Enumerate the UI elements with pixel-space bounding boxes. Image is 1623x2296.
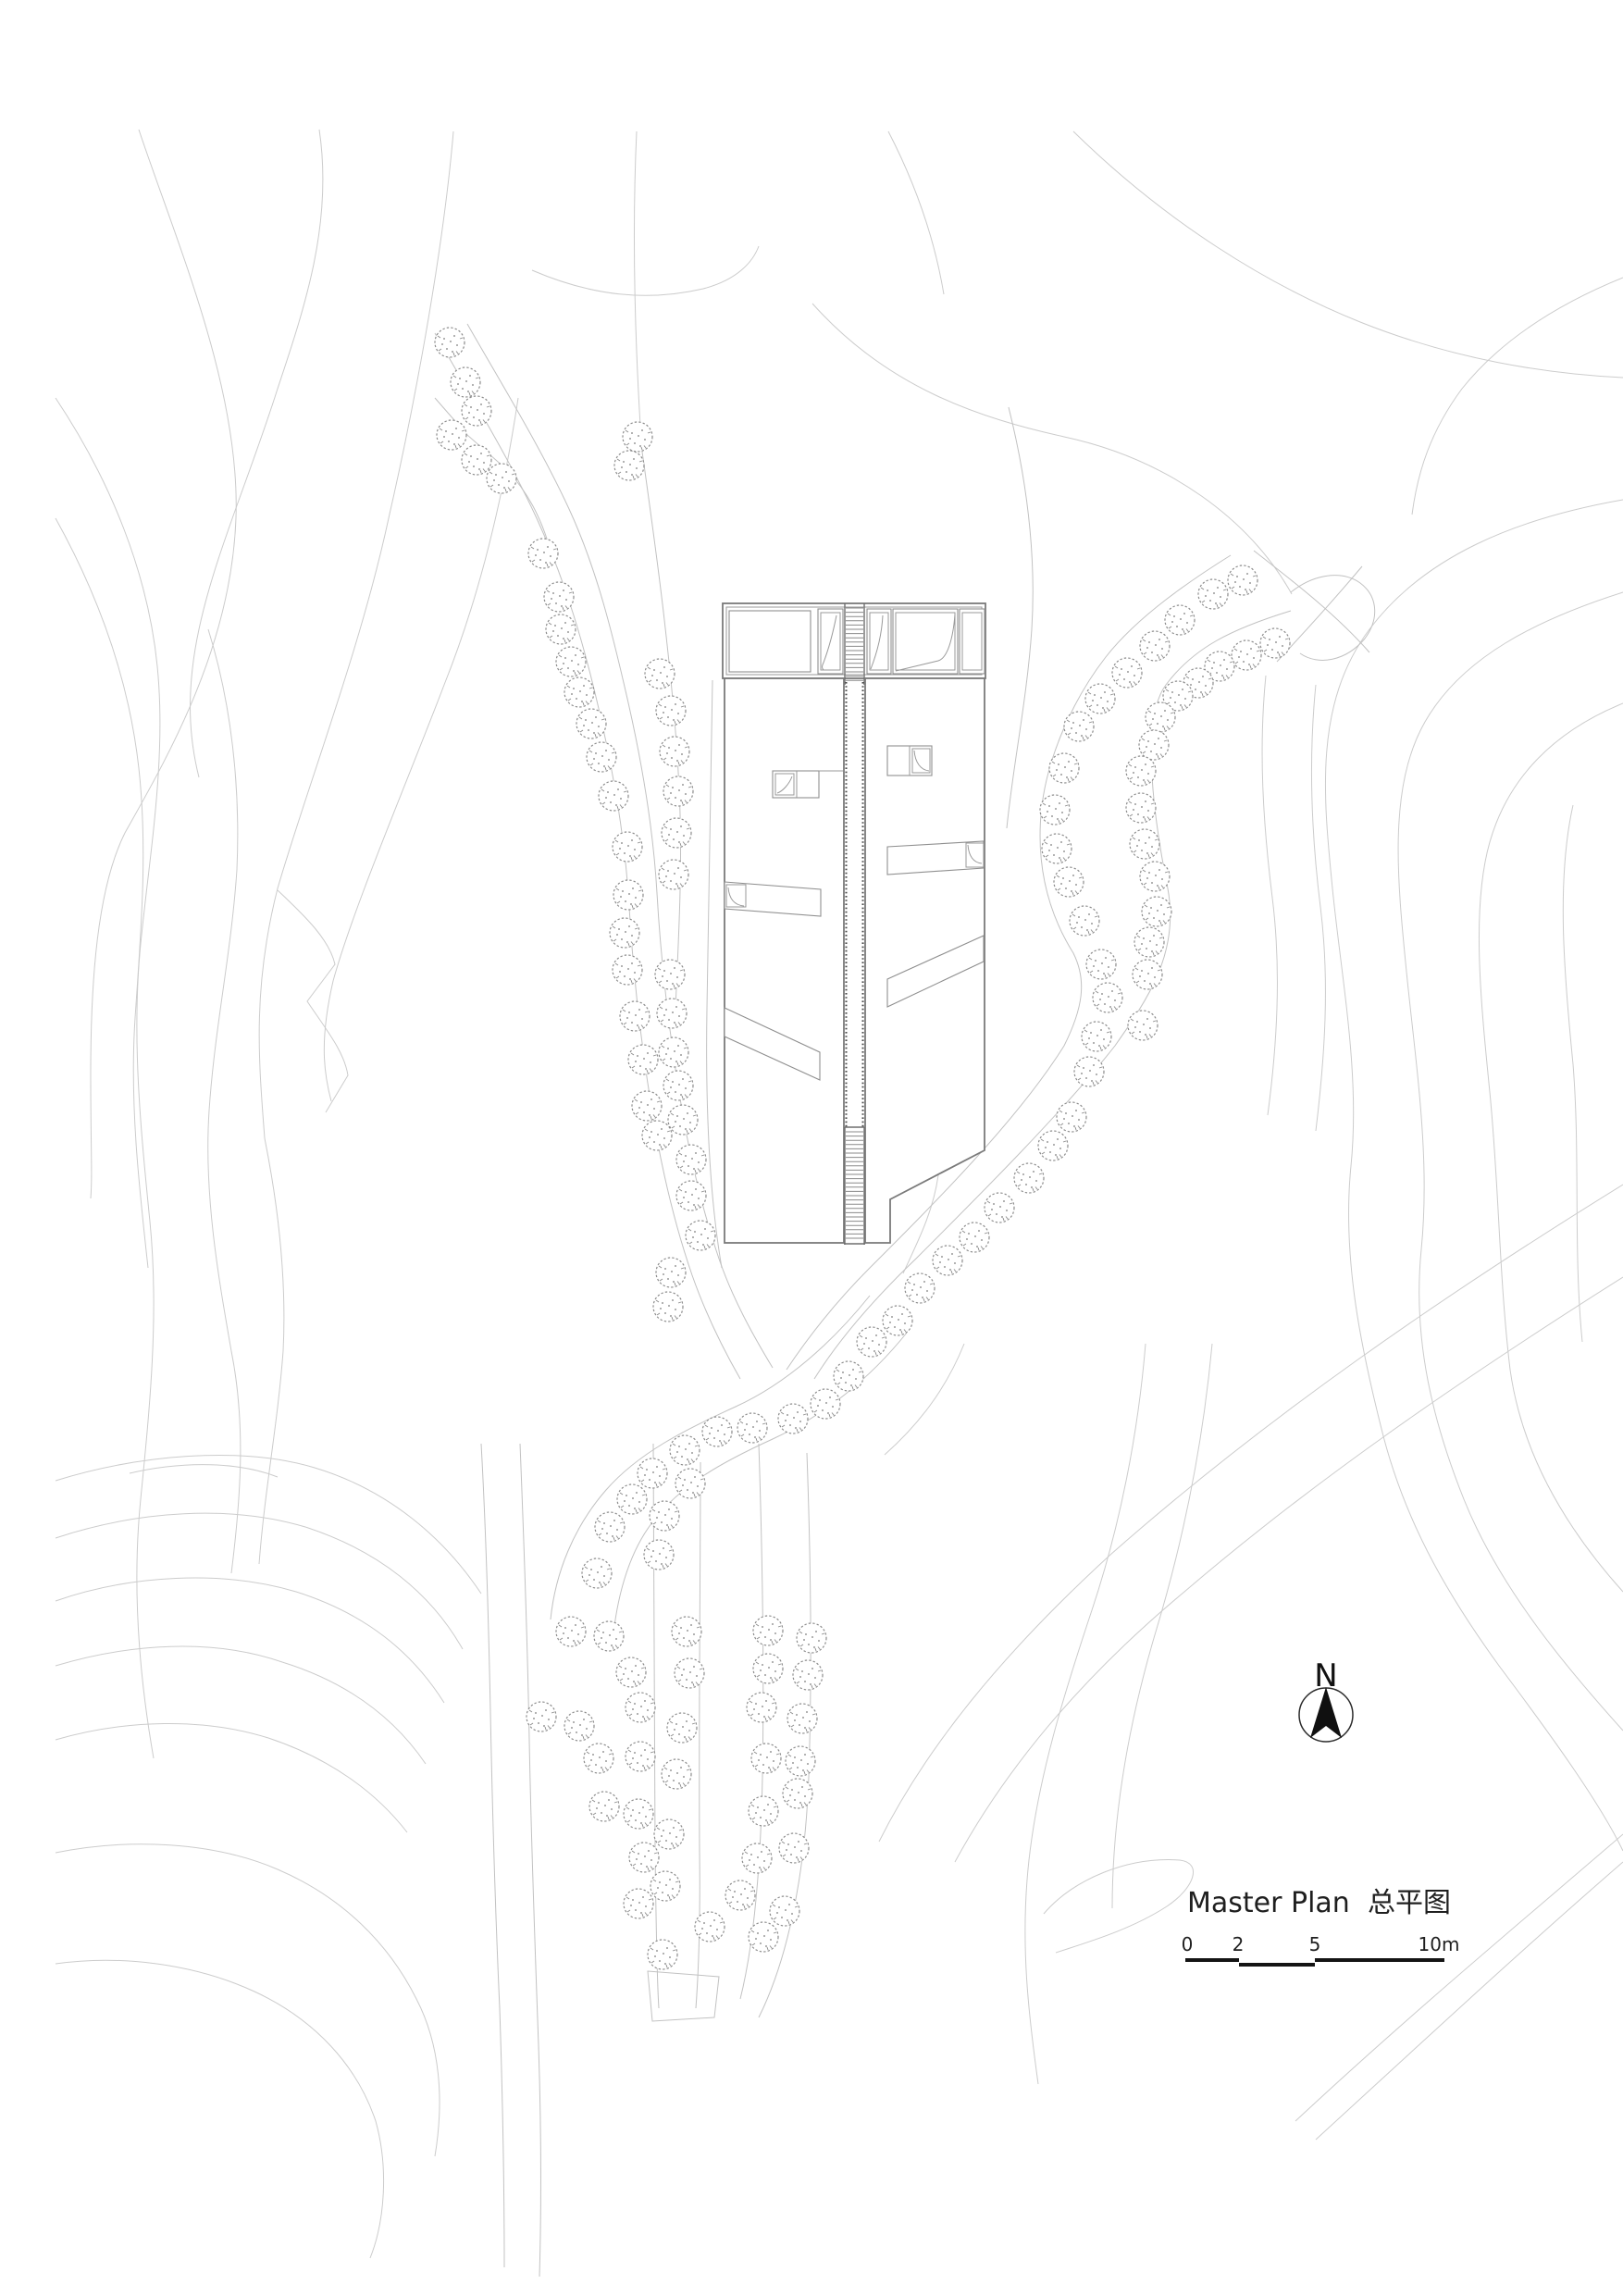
tree-symbol — [811, 1389, 840, 1419]
contour-line — [91, 130, 236, 1198]
site-plan-canvas: N Master Plan 总平图 02510m — [0, 0, 1623, 2296]
north-arrow: N — [1299, 1657, 1353, 1742]
tree-symbol — [933, 1246, 962, 1275]
tree-symbol — [675, 1469, 705, 1498]
contour-line — [634, 131, 640, 426]
tree-symbol — [751, 1744, 781, 1773]
tree-symbol — [1038, 1131, 1068, 1160]
tree-symbol — [676, 1181, 706, 1210]
tree-symbol — [1128, 1011, 1158, 1040]
contour-line — [56, 1723, 407, 1832]
tree-symbol — [626, 1742, 655, 1771]
tree-symbol — [632, 1091, 662, 1121]
tree-symbol — [662, 1759, 691, 1789]
tree-symbol — [1228, 565, 1258, 595]
tree-symbol — [1126, 793, 1156, 823]
tree-symbol — [564, 1711, 594, 1741]
tree-symbol — [657, 999, 687, 1028]
drawing-sheet: N Master Plan 总平图 02510m — [0, 0, 1623, 2296]
footpath-line — [707, 680, 722, 1268]
title-block: Master Plan 总平图 — [1187, 1887, 1451, 1919]
tree-symbol — [702, 1417, 732, 1446]
tree-symbol — [648, 1940, 677, 1969]
tree-symbol — [655, 960, 685, 989]
tree-symbol — [1140, 631, 1170, 661]
contour-line — [888, 131, 944, 294]
tree-symbol — [753, 1616, 783, 1645]
tree-symbol — [797, 1623, 826, 1653]
building-part — [725, 678, 844, 1243]
contour-line — [1412, 278, 1623, 515]
contour-line — [1112, 1344, 1212, 1908]
tree-symbol — [589, 1792, 619, 1821]
tree-symbol — [644, 1540, 674, 1570]
contour-line — [324, 398, 518, 1101]
tree-symbol — [527, 1702, 556, 1731]
tree-symbol — [546, 614, 576, 644]
tree-symbol — [610, 918, 639, 948]
tree-symbol — [1130, 829, 1159, 859]
contour-line — [885, 1344, 964, 1455]
tree-symbol — [770, 1896, 799, 1926]
tree-symbol — [737, 1413, 767, 1443]
contour-line — [1325, 500, 1623, 1851]
contour-line — [532, 246, 759, 295]
tree-symbol — [670, 1435, 700, 1465]
tree-symbol — [1082, 1022, 1111, 1051]
tree-symbol — [1074, 1057, 1104, 1086]
tree-symbol — [742, 1843, 772, 1873]
tree-symbol — [624, 1799, 653, 1829]
scale-label: 5 — [1309, 1933, 1321, 1955]
tree-symbol — [985, 1193, 1014, 1222]
tree-symbol — [584, 1744, 613, 1773]
tree-symbol — [544, 582, 574, 612]
tree-symbol — [695, 1912, 725, 1942]
plan-title-en: Master Plan — [1187, 1887, 1350, 1919]
tree-symbol — [556, 647, 586, 676]
contour-line — [56, 398, 160, 1758]
building-part — [729, 611, 811, 672]
tree-symbol — [594, 1621, 624, 1651]
building-roof-plan — [723, 603, 985, 1245]
scale-bar-segment — [1315, 1958, 1444, 1962]
tree-symbol — [1086, 949, 1116, 979]
tree-symbol — [1198, 579, 1228, 609]
tree-symbol — [650, 1501, 679, 1531]
tree-symbol — [659, 1037, 688, 1067]
tree-symbol — [660, 737, 689, 766]
building-part — [773, 771, 819, 798]
north-arrow-needle — [1310, 1687, 1342, 1738]
scale-bar: 02510m — [1182, 1933, 1460, 1967]
scale-label: 10m — [1419, 1933, 1460, 1955]
tree-symbol — [668, 1105, 698, 1135]
tree-symbol — [1133, 960, 1162, 989]
tree-symbol — [1049, 753, 1079, 783]
tree-symbol — [1232, 640, 1261, 670]
tree-symbol — [659, 860, 688, 889]
tree-symbol — [905, 1273, 935, 1303]
footpath-line — [481, 1444, 504, 2267]
tree-symbol — [778, 1404, 808, 1433]
tree-symbol — [642, 1121, 672, 1150]
contour-line — [1311, 685, 1325, 1131]
building-part — [960, 609, 985, 674]
contour-line — [56, 1513, 463, 1649]
contour-line — [1044, 1860, 1194, 1953]
tree-symbol — [1112, 658, 1142, 688]
tree-symbol — [613, 832, 642, 862]
contour-line — [56, 1844, 440, 2156]
contour-line — [56, 518, 148, 1268]
tree-symbol — [1014, 1163, 1044, 1193]
tree-symbol — [783, 1779, 812, 1808]
tree-symbol — [613, 955, 642, 985]
tree-symbol — [624, 1889, 653, 1918]
tree-symbol — [960, 1222, 989, 1252]
tree-symbol — [462, 445, 491, 475]
tree-symbol — [656, 696, 686, 726]
tree-symbol — [587, 742, 616, 772]
contour-line — [1479, 703, 1623, 1592]
tree-symbol — [1070, 906, 1099, 936]
tree-symbol — [451, 367, 480, 397]
tree-symbol — [662, 818, 691, 848]
contour-line — [259, 1138, 284, 1564]
tree-symbol — [599, 781, 628, 811]
tree-symbol — [645, 659, 675, 689]
tree-symbol — [667, 1713, 697, 1743]
scale-label: 0 — [1182, 1933, 1194, 1955]
tree-symbol — [1165, 605, 1195, 635]
tree-symbol — [616, 1657, 646, 1687]
contour-line — [56, 1646, 426, 1764]
tree-symbol — [883, 1306, 912, 1335]
tree-symbol — [787, 1704, 817, 1733]
contour-line — [1295, 1834, 1623, 2121]
tree-symbol — [638, 1458, 667, 1488]
contour-line — [56, 1578, 444, 1703]
footpath-line — [520, 1444, 540, 2277]
tree-symbol — [653, 1292, 683, 1322]
tree-symbol — [1126, 756, 1156, 786]
tree-symbol — [779, 1833, 809, 1863]
contour-line — [130, 1465, 278, 1477]
contour-line — [812, 304, 1292, 594]
tree-symbol — [786, 1746, 815, 1776]
tree-symbol — [1139, 730, 1169, 760]
tree-symbol — [749, 1922, 778, 1952]
tree-symbol — [582, 1558, 612, 1588]
contour-line — [1262, 676, 1277, 1115]
contour-line — [1563, 805, 1582, 1342]
tree-symbol — [1040, 795, 1070, 825]
tree-symbol — [556, 1617, 586, 1646]
tree-symbol — [834, 1361, 863, 1391]
contour-line — [1316, 1862, 1623, 2140]
tree-symbol — [564, 677, 594, 707]
scale-bar-segment — [1185, 1958, 1239, 1962]
contour-line — [191, 130, 323, 777]
tree-symbol — [613, 880, 643, 910]
footpath-line — [1007, 407, 1033, 828]
tree-symbol — [614, 451, 644, 480]
contour-line — [955, 1277, 1623, 1862]
building-part — [887, 841, 984, 875]
tree-symbol — [1054, 867, 1084, 897]
tree-symbol — [576, 709, 606, 738]
tree-symbol — [437, 420, 466, 450]
scale-bar-segment — [1239, 1963, 1315, 1967]
tree-symbol — [626, 1693, 655, 1722]
tree-symbol — [753, 1654, 783, 1683]
contour-line — [56, 1960, 384, 2258]
tree-symbol — [793, 1660, 823, 1690]
tree-symbol — [663, 1071, 693, 1100]
tree-symbol — [1085, 684, 1115, 714]
tree-symbol — [1064, 712, 1094, 741]
tree-symbol — [595, 1512, 625, 1542]
tree-symbol — [857, 1327, 886, 1357]
tree-symbol — [1146, 702, 1175, 732]
tree-symbol — [725, 1880, 755, 1910]
contour-line — [278, 890, 348, 1112]
tree-symbol — [628, 1045, 658, 1074]
contour-line — [879, 1185, 1623, 1842]
tree-symbol — [676, 1145, 706, 1174]
tree-symbol — [1093, 983, 1122, 1012]
tree-symbol — [1142, 897, 1171, 926]
contour-line — [259, 131, 453, 1138]
tree-symbol — [1057, 1102, 1086, 1132]
contour-line — [1073, 131, 1623, 378]
tree-symbol — [650, 1871, 680, 1901]
contour-line — [1025, 1344, 1146, 2084]
tree-symbol — [1042, 834, 1072, 863]
tree-symbol — [629, 1843, 659, 1872]
contour-line — [208, 629, 241, 1573]
scale-label: 2 — [1233, 1933, 1245, 1955]
footpath-line — [1291, 576, 1375, 661]
tree-symbol — [435, 328, 465, 357]
tree-symbol — [656, 1258, 686, 1287]
tree-symbol — [1260, 628, 1290, 658]
tree-symbol — [663, 776, 693, 806]
tree-symbol — [654, 1819, 684, 1849]
plan-title-cn: 总平图 — [1368, 1887, 1451, 1919]
tree-symbol — [1134, 927, 1164, 957]
tree-symbol — [672, 1617, 701, 1646]
tree-symbol — [487, 464, 516, 493]
tree-symbol — [623, 422, 652, 452]
tree-symbol — [747, 1693, 776, 1722]
tree-symbol — [749, 1796, 778, 1826]
tree-symbol — [528, 539, 558, 568]
tree-symbol — [675, 1658, 704, 1688]
tree-symbol — [686, 1221, 715, 1250]
tree-symbol — [1140, 862, 1170, 891]
tree-symbol — [620, 1001, 650, 1031]
tree-symbol — [462, 396, 491, 426]
tree-symbol — [617, 1484, 647, 1514]
